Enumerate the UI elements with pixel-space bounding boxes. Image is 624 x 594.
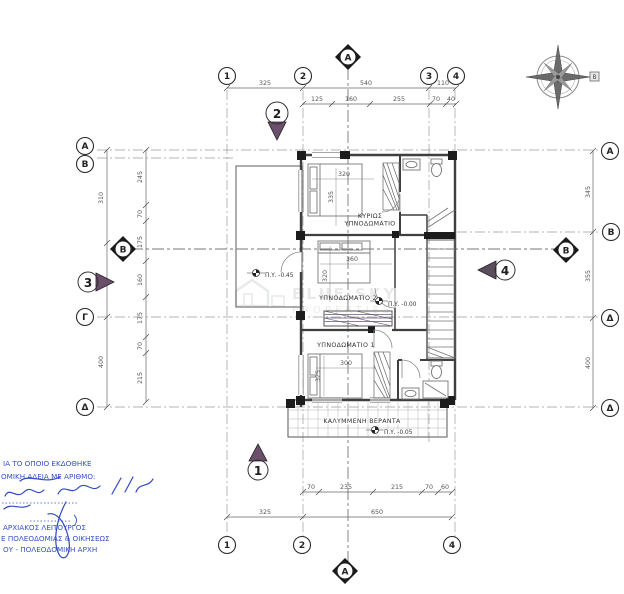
dim-bot-235: 235 [340, 484, 352, 491]
approval-stamp: ΙΑ ΤΟ ΟΠΟΙΟ ΕΚΔΟΘΗΚΕ ΟΜΙΚΗ ΑΔΕΙΑ ΜΕ ΑΡΙΘ… [1, 459, 153, 558]
bubble-left-A: Α [82, 142, 89, 152]
dim-left-400: 400 [98, 356, 105, 368]
stamp-line-1: ΙΑ ΤΟ ΟΠΟΙΟ ΕΚΔΟΘΗΚΕ [3, 459, 92, 468]
dim-li-70a: 70 [137, 210, 144, 218]
level-text-veranda: Π.Υ. -0.05 [384, 430, 413, 436]
view-marker-1-label: 1 [254, 464, 262, 478]
section-marker-A-top: Α [335, 44, 361, 70]
bubble-top-2: 2 [300, 72, 306, 82]
compass-north-label: Β [592, 74, 596, 81]
dim-bot-70b: 70 [425, 484, 433, 491]
dim-right-400: 400 [585, 357, 592, 369]
level-marker-terrace [247, 270, 265, 277]
bubble-top-1: 1 [224, 72, 230, 82]
columns [286, 151, 457, 408]
dim-li-175a: 175 [137, 236, 144, 248]
dim-right-355: 355 [585, 270, 592, 282]
bubble-bottom-1: 1 [224, 541, 230, 551]
dim-li-160: 160 [137, 274, 144, 286]
dim-bot-215: 215 [391, 484, 403, 491]
dim-top-540: 540 [360, 80, 372, 87]
bubble-bottom-4: 4 [449, 541, 455, 551]
section-A-bottom-label: Α [342, 568, 349, 578]
staircase [427, 208, 455, 358]
view-marker-3-label: 3 [84, 276, 92, 290]
stamp-line-5: ΟΥ - ΠΟΛΕΟΔΟΜΙΚΗ ΑΡΧΗ [3, 545, 97, 554]
dim-li-245: 245 [137, 171, 144, 183]
bath1-fixtures [403, 159, 442, 177]
dim-right-345: 345 [585, 186, 592, 198]
dim-top2-40: 40 [447, 96, 455, 103]
section-B-left-label: Β [120, 246, 127, 256]
bubble-left-D: Δ [82, 403, 89, 413]
wardrobe-bed1 [374, 352, 390, 398]
dim-li-215: 215 [137, 372, 144, 384]
wardrobe-master [383, 163, 399, 210]
dim-bed2-360: 360 [346, 256, 358, 263]
dim-master-335: 335 [328, 191, 335, 203]
view-marker-2: 2 [266, 102, 288, 140]
section-marker-B-left: Β [110, 236, 136, 262]
dim-top2-255: 255 [393, 96, 405, 103]
view-marker-4-label: 4 [501, 264, 509, 278]
level-text-terrace: Π.Υ. -0.45 [265, 273, 294, 279]
room-label-master-1: ΚΥΡΙΩΣ [358, 213, 382, 220]
dim-bot-70a: 70 [307, 484, 315, 491]
dim-top-325: 325 [259, 80, 271, 87]
bed-master [308, 164, 362, 216]
bubble-right-A: Α [607, 147, 614, 157]
bubble-bottom-2: 2 [299, 541, 305, 551]
section-marker-A-bottom: Α [332, 558, 358, 584]
toilet-bowl-top [432, 164, 442, 177]
dim-bed1-300: 300 [340, 360, 352, 367]
dim-top-110: 110 [437, 80, 449, 87]
room-label-bed1: ΥΠΝΟΔΩΜΑΤΙΟ 1 [316, 342, 375, 349]
dim-bot-325: 325 [259, 509, 271, 516]
dim-master-320: 320 [338, 171, 350, 178]
view-marker-1: 1 [248, 444, 268, 480]
dim-bot-60: 60 [441, 484, 449, 491]
compass-rose: Β [526, 45, 599, 109]
bubble-right-D2: Δ [607, 404, 614, 414]
view-marker-3: 3 [78, 272, 114, 292]
bubble-top-4: 4 [453, 72, 459, 82]
bubble-right-D1: Δ [607, 314, 614, 324]
bubble-top-3: 3 [426, 72, 432, 82]
room-label-veranda: ΚΑΛΥΜΜΕΝΗ ΒΕΡΑΝΤΑ [323, 418, 401, 425]
toilet-bowl-bottom [432, 366, 442, 379]
view-marker-4: 4 [478, 260, 515, 280]
dim-bed1-325: 325 [315, 370, 322, 382]
section-marker-B-right: Β [553, 237, 579, 263]
section-B-right-label: Β [563, 247, 570, 257]
dim-li-175b: 175 [137, 312, 144, 324]
dim-top2-70: 70 [432, 96, 440, 103]
bubble-right-B: Β [608, 228, 615, 238]
room-label-bed2: ΥΠΝΟΔΩΜΑΤΙΟ 2 [318, 295, 377, 302]
stamp-line-3: ΑΡΧΙΑΚΟΣ ΛΕΙΤΟΥΡΓΟΣ [3, 523, 86, 532]
view-marker-2-label: 2 [273, 107, 281, 121]
section-A-top-label: Α [345, 54, 352, 64]
scanned-floor-plan-sheet: BLUE SKY PROPERTIES 325 540 [0, 0, 624, 594]
dim-top2-125: 125 [311, 96, 323, 103]
dim-bed2-320: 320 [322, 270, 329, 282]
dim-top2-160: 160 [345, 96, 357, 103]
level-text-floor: Π.Υ. -0.00 [388, 302, 417, 308]
bath2-fixtures [402, 361, 448, 399]
floor-plan-drawing: BLUE SKY PROPERTIES 325 540 [0, 0, 624, 594]
dim-left-310: 310 [98, 192, 105, 204]
dim-li-70b: 70 [137, 342, 144, 350]
dim-bot-650: 650 [371, 509, 383, 516]
bubble-left-C: Γ [82, 313, 88, 323]
bubble-left-B: Β [82, 160, 89, 170]
level-marker-veranda [366, 427, 384, 434]
room-label-master-2: ΥΠΝΟΔΩΜΑΤΙΟ [343, 221, 395, 228]
